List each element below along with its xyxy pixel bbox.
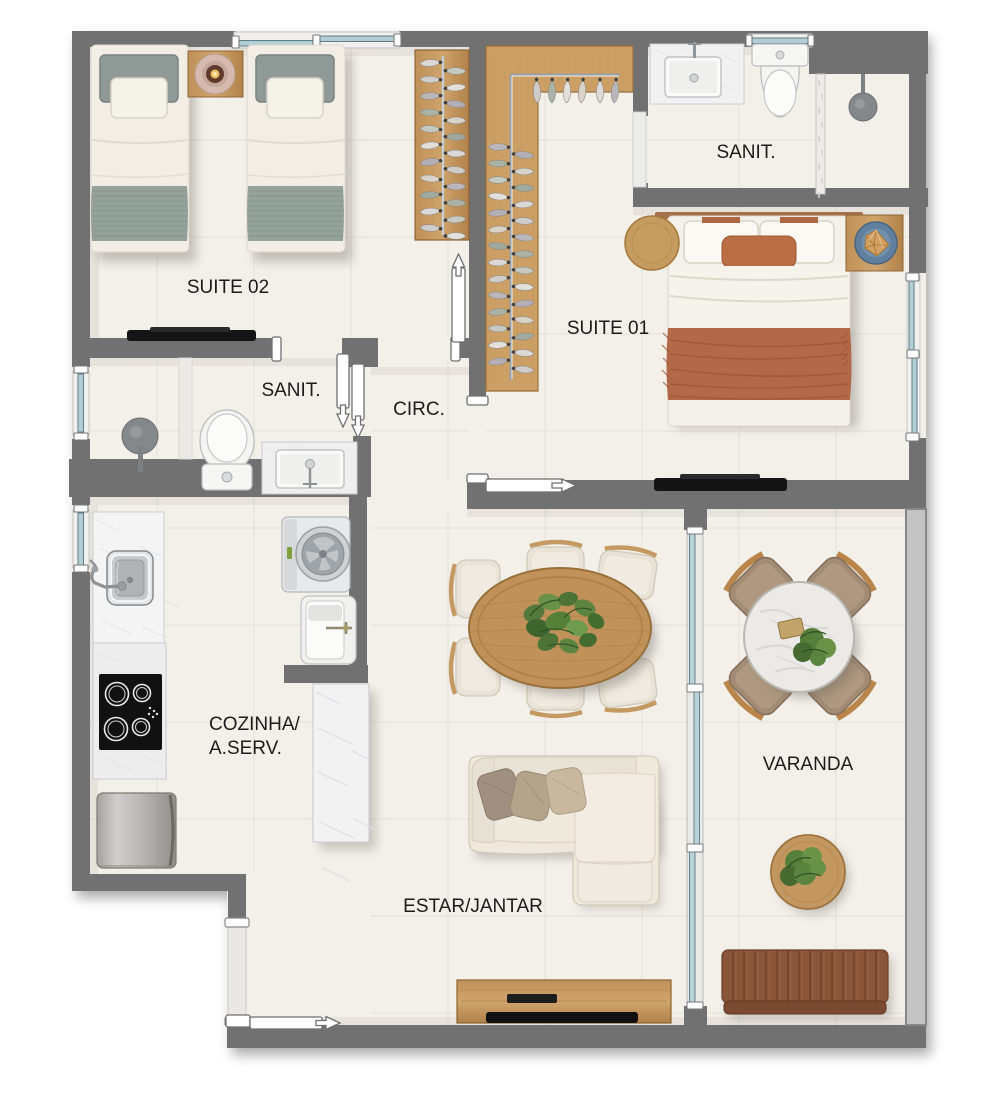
svg-text:SUITE 02: SUITE 02 xyxy=(187,277,269,298)
svg-text:CIRC.: CIRC. xyxy=(393,399,445,420)
svg-text:A.SERV.: A.SERV. xyxy=(209,738,282,759)
svg-text:SANIT.: SANIT. xyxy=(716,142,775,163)
svg-text:ESTAR/JANTAR: ESTAR/JANTAR xyxy=(403,896,543,917)
svg-text:SUITE 01: SUITE 01 xyxy=(567,318,649,339)
svg-text:VARANDA: VARANDA xyxy=(763,754,854,775)
svg-text:COZINHA/: COZINHA/ xyxy=(209,714,301,735)
svg-text:SANIT.: SANIT. xyxy=(261,380,320,401)
